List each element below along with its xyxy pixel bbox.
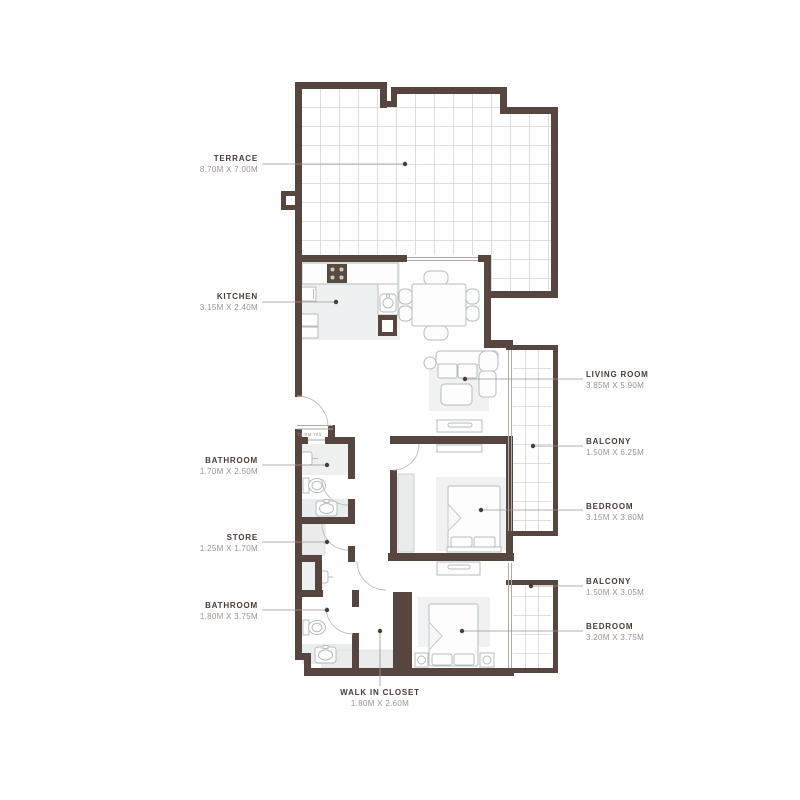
room-name: KITCHEN [108, 291, 258, 302]
label-kitchen: KITCHEN 3.15M X 2.40M [108, 291, 258, 313]
room-name: BATHROOM [108, 600, 258, 611]
label-bathroom-1: BATHROOM 1.70M X 2.50M [108, 455, 258, 477]
stove-hob [327, 264, 347, 283]
room-dimensions: 3.20M X 3.75M [586, 632, 736, 643]
label-bedroom-1: BEDROOM 3.15M X 3.80M [586, 501, 736, 523]
balcony-tile-grids [513, 350, 551, 668]
room-dimensions: 8.70M X 7.00M [108, 164, 258, 175]
floor-plan-drawing [0, 0, 800, 800]
room-dimensions: 3.15M X 2.40M [108, 302, 258, 313]
room-dimensions: 1.80M X 2.60M [305, 698, 455, 709]
label-bedroom-2: BEDROOM 3.20M X 3.75M [586, 621, 736, 643]
room-dimensions: 1.70M X 2.50M [108, 466, 258, 477]
floor-plan-page: TERRACE 8.70M X 7.00M KITCHEN 3.15M X 2.… [0, 0, 800, 800]
label-living-room: LIVING ROOM 3.85M X 5.90M [586, 369, 736, 391]
bedroom2-dresser [437, 562, 480, 575]
room-dimensions: 1.80M X 3.75M [108, 611, 258, 622]
room-dimensions: 3.85M X 5.90M [586, 380, 736, 391]
unit-number-label: T1-RM 703 [297, 432, 321, 437]
label-store: STORE 1.25M X 1.70M [108, 532, 258, 554]
bedroom1-side-wardrobe [398, 474, 414, 552]
room-name: BALCONY [586, 436, 736, 447]
dining-table-set [399, 271, 479, 340]
room-name: BEDROOM [586, 621, 736, 632]
bathroom1-sink [316, 500, 337, 517]
label-balcony-1: BALCONY 1.50M X 6.25M [586, 436, 736, 458]
bathroom2-toilet [303, 620, 326, 635]
room-name: TERRACE [108, 153, 258, 164]
label-bathroom-2: BATHROOM 1.80M X 3.75M [108, 600, 258, 622]
coffee-table [441, 384, 472, 405]
room-name: BEDROOM [586, 501, 736, 512]
room-name: STORE [108, 532, 258, 543]
tv-console [437, 420, 482, 432]
room-dimensions: 3.15M X 3.80M [586, 512, 736, 523]
room-dimensions: 1.50M X 3.05M [586, 587, 736, 598]
label-walk-in-closet: WALK IN CLOSET 1.80M X 2.60M [305, 687, 455, 709]
room-dimensions: 1.25M X 1.70M [108, 543, 258, 554]
room-dimensions: 1.50M X 6.25M [586, 447, 736, 458]
room-name: LIVING ROOM [586, 369, 736, 380]
bedroom1-bed [447, 486, 501, 552]
room-name: BATHROOM [108, 455, 258, 466]
room-name: WALK IN CLOSET [305, 687, 455, 698]
label-terrace: TERRACE 8.70M X 7.00M [108, 153, 258, 175]
bathroom2-sink [315, 646, 336, 664]
room-name: BALCONY [586, 576, 736, 587]
label-balcony-2: BALCONY 1.50M X 3.05M [586, 576, 736, 598]
